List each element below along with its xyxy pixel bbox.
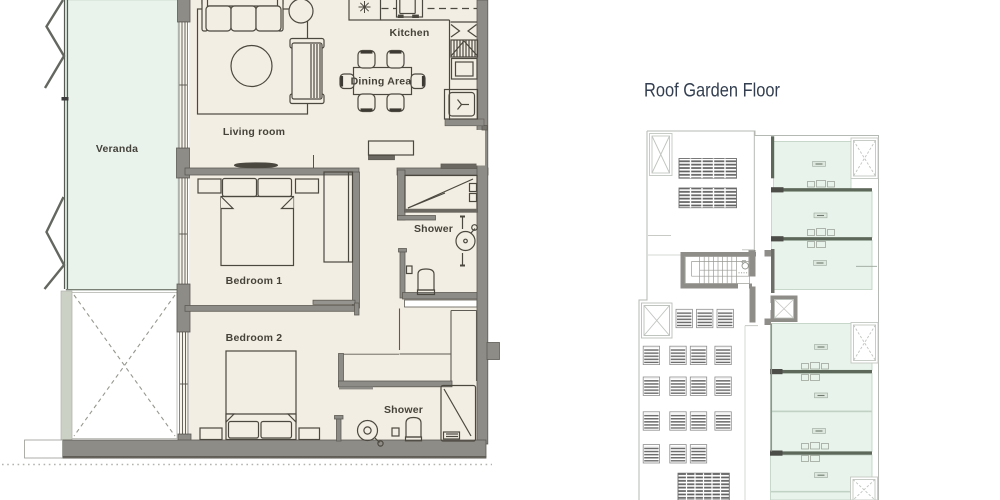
svg-text:Bedroom 1: Bedroom 1: [226, 275, 283, 287]
svg-text:Roof Garden Floor: Roof Garden Floor: [644, 80, 780, 102]
svg-text:Shower: Shower: [384, 404, 423, 416]
svg-text:Bedroom 2: Bedroom 2: [226, 332, 283, 344]
svg-text:Shower: Shower: [414, 223, 453, 235]
svg-text:Living room: Living room: [223, 126, 285, 138]
svg-text:Kitchen: Kitchen: [390, 27, 430, 39]
svg-text:Dining Area: Dining Area: [351, 76, 412, 88]
svg-text:Veranda: Veranda: [96, 143, 138, 155]
